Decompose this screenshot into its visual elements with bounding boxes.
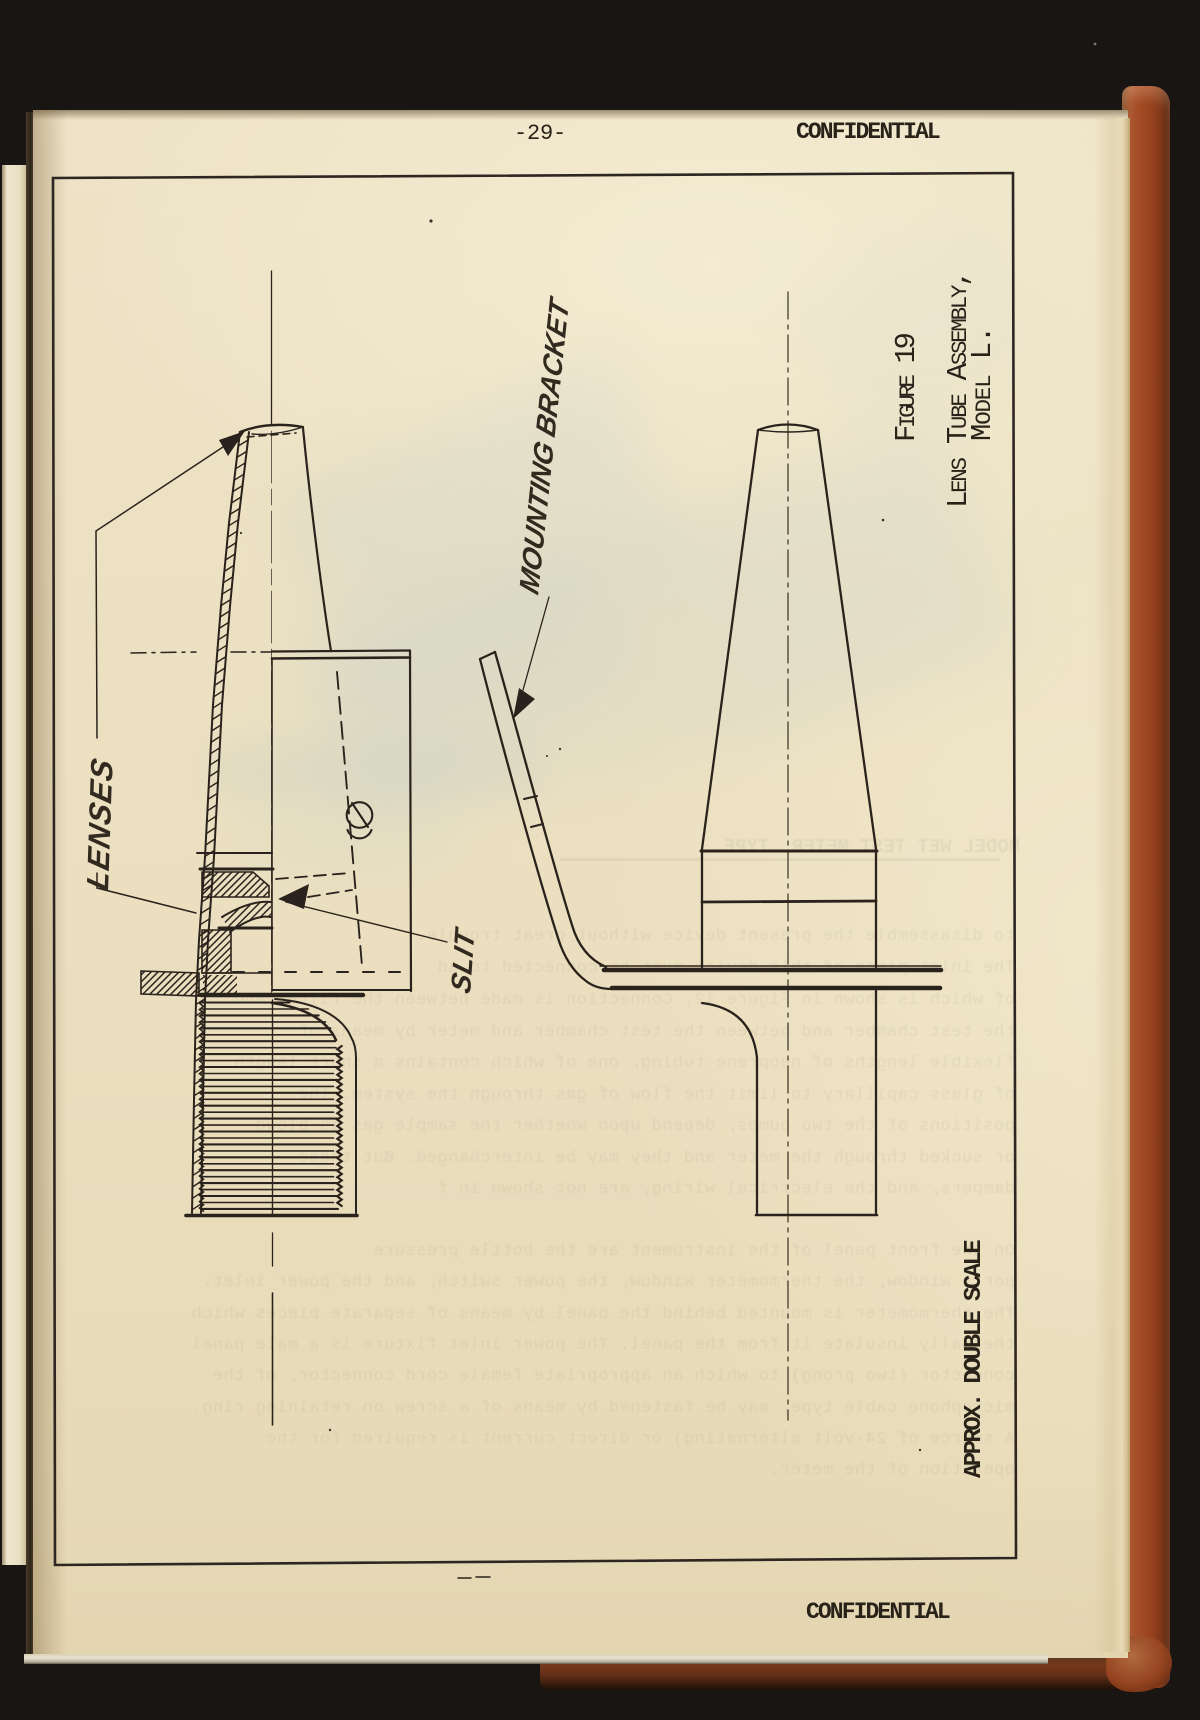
svg-text:FIGURE 19: FIGURE 19 (890, 333, 923, 442)
svg-text:SLIT: SLIT (445, 923, 481, 997)
svg-text:CONFIDENTIAL: CONFIDENTIAL (796, 119, 940, 145)
svg-text:APPROX. DOUBLE SCALE: APPROX. DOUBLE SCALE (961, 1240, 988, 1478)
svg-text:MOUNTING BRACKET: MOUNTING BRACKET (514, 292, 576, 598)
svg-text:LENSES: LENSES (81, 754, 120, 894)
svg-text:CONFIDENTIAL: CONFIDENTIAL (806, 1599, 950, 1625)
svg-text:MODEL L.: MODEL L. (966, 327, 999, 441)
svg-text:-29-: -29- (514, 121, 566, 146)
